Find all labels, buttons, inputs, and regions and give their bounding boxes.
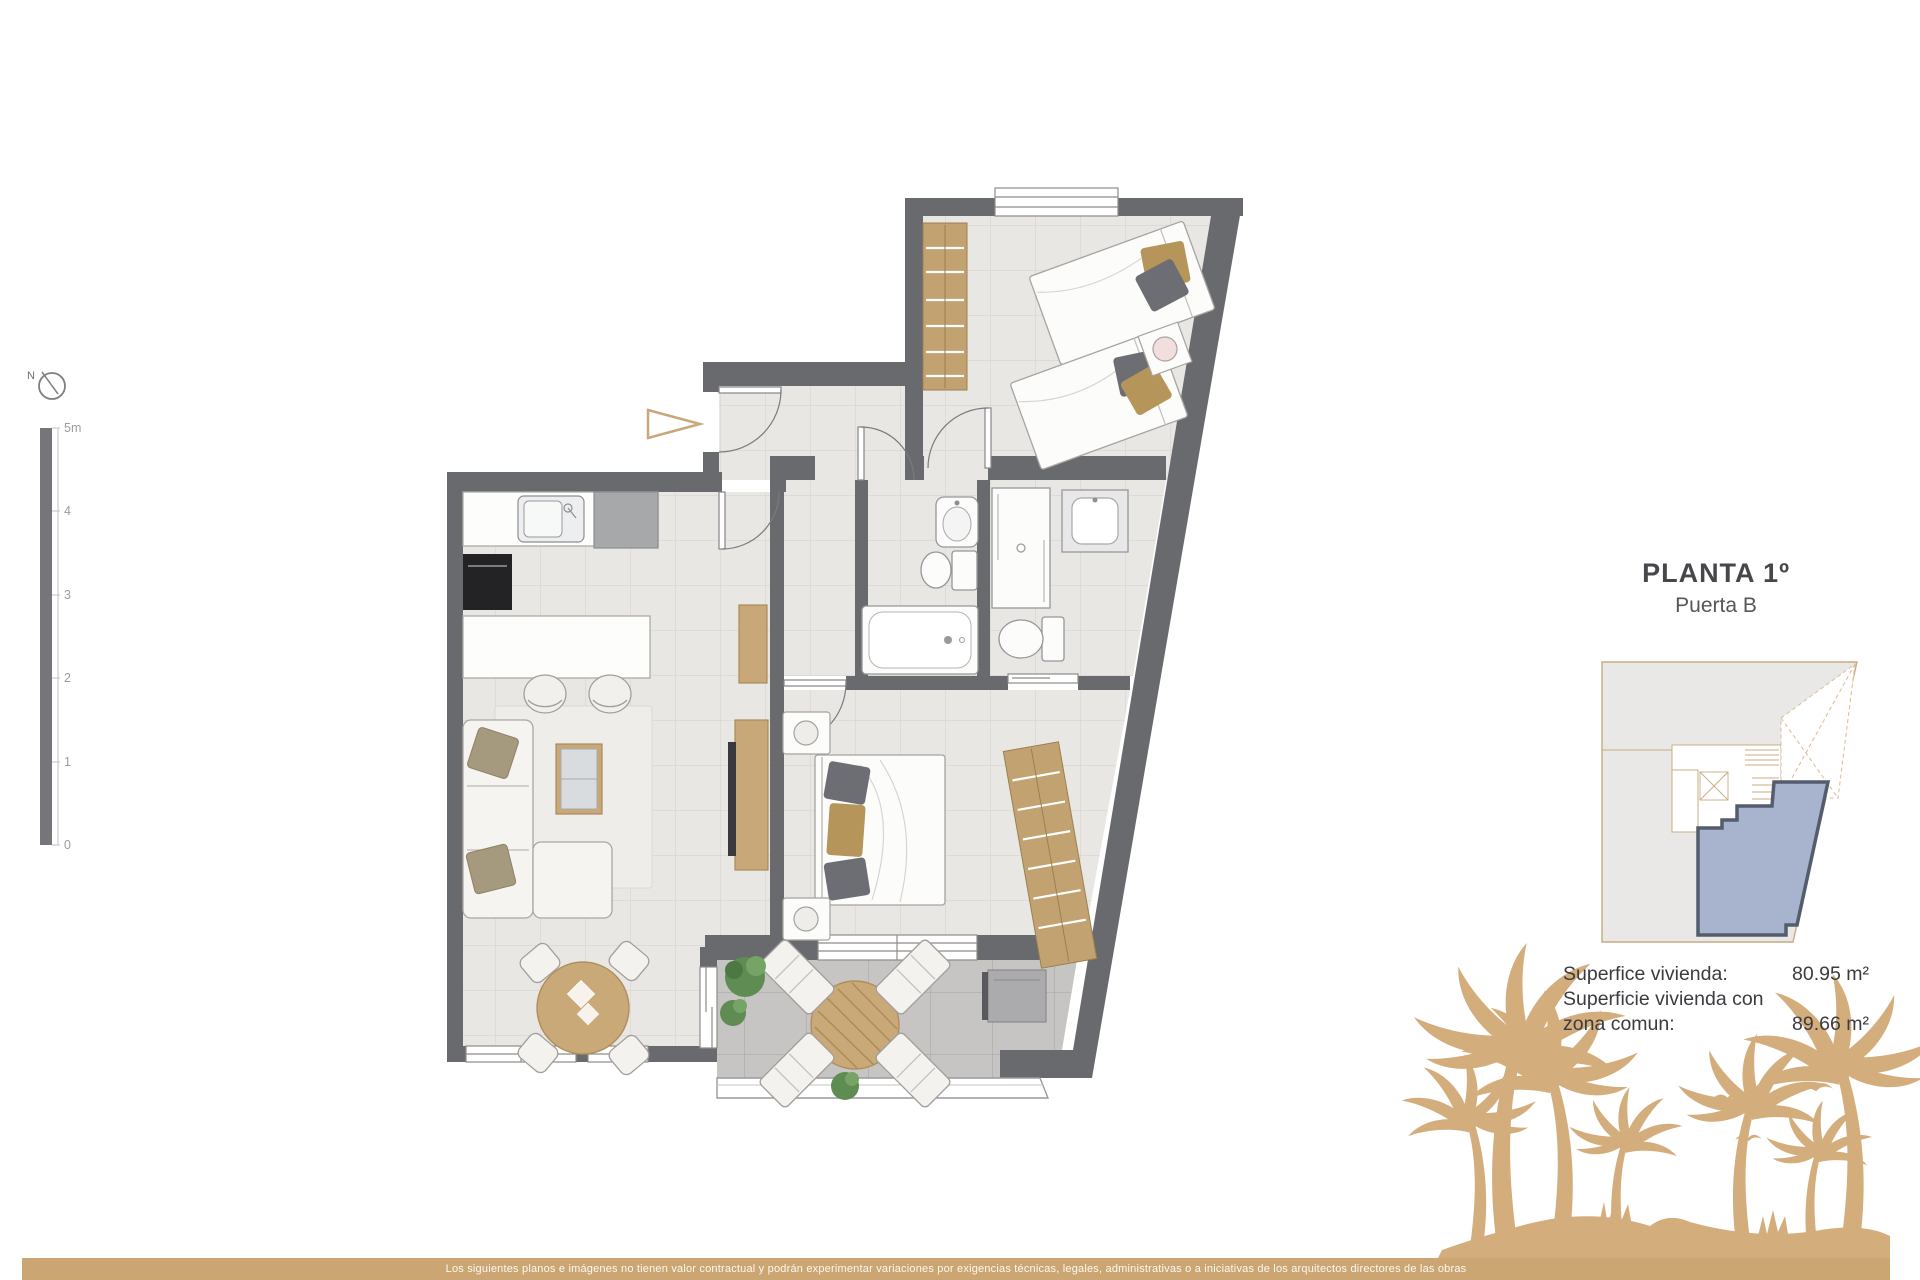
- plan-title-block: PLANTA 1º Puerta B: [1566, 558, 1866, 618]
- compass-north-label: N: [27, 370, 35, 382]
- double-bed: [815, 755, 945, 905]
- kitchen-sink: [518, 496, 584, 542]
- toilet-2: [999, 617, 1064, 661]
- disclaimer-text: Los siguientes planos e imágenes no tien…: [22, 1258, 1890, 1280]
- svg-text:5m: 5m: [64, 421, 81, 435]
- ac-unit: [982, 970, 1046, 1022]
- scale-labels: 5m 4 3 2 1 0: [64, 421, 81, 852]
- svg-text:0: 0: [64, 838, 71, 852]
- surface-row: zona comun: 89.66 m²: [1563, 1012, 1869, 1037]
- scale-bar: 5m 4 3 2 1 0: [40, 421, 81, 852]
- floor-plan-canvas: N 5m 4 3 2 1 0: [0, 0, 1920, 1280]
- washbasin-1: [936, 497, 978, 547]
- svg-text:2: 2: [64, 671, 71, 685]
- window-master-south: [818, 935, 977, 960]
- tv-console: [728, 720, 768, 870]
- bathroom1-door-leaf: [858, 427, 864, 480]
- oven: [463, 554, 512, 610]
- coffee-table: [556, 744, 602, 814]
- surface-row: Superfice vivienda: 80.95 m²: [1563, 962, 1869, 987]
- page-subtitle: Puerta B: [1566, 594, 1866, 618]
- entry-door-opening: [703, 392, 719, 452]
- surface-row: Superficie vivienda con: [1563, 987, 1869, 1012]
- svg-text:1: 1: [64, 755, 71, 769]
- bedroom2-door-leaf: [985, 408, 991, 468]
- key-plan: [1602, 662, 1857, 942]
- living-door-leaf: [719, 492, 725, 549]
- shower: [992, 488, 1050, 608]
- pillow: [823, 857, 870, 901]
- grass-tuft: [1758, 1210, 1788, 1236]
- pillow: [826, 803, 866, 857]
- surface-label: Superficie vivienda con: [1563, 987, 1764, 1012]
- sliding-door-bathroom2: [1008, 674, 1078, 683]
- bathtub: [862, 606, 978, 674]
- entrance-arrow-icon: [648, 410, 700, 438]
- svg-text:4: 4: [64, 504, 71, 518]
- svg-text:3: 3: [64, 588, 71, 602]
- tv-screen: [728, 742, 736, 856]
- sideboard: [739, 605, 767, 683]
- surface-value: 89.66 m²: [1792, 1012, 1869, 1037]
- north-compass-icon: N: [27, 370, 65, 399]
- brochure-page: N 5m 4 3 2 1 0: [0, 0, 1920, 1280]
- cooktop: [594, 492, 658, 548]
- sliding-door-terrace: [700, 967, 717, 1048]
- window-bedroom2-top: [995, 188, 1118, 216]
- entry-door-leaf: [719, 387, 781, 393]
- surface-label: Superfice vivienda:: [1563, 962, 1728, 987]
- wardrobe-bedroom2: [923, 223, 967, 390]
- pillow: [823, 761, 871, 806]
- kitchen-island: [463, 616, 650, 678]
- surface-value: 80.95 m²: [1792, 962, 1869, 987]
- page-title: PLANTA 1º: [1566, 558, 1866, 589]
- master-door-leaf: [784, 680, 846, 686]
- washbasin-2: [1062, 490, 1128, 552]
- surface-label: zona comun:: [1563, 1012, 1675, 1037]
- surface-areas-block: Superfice vivienda: 80.95 m² Superficie …: [1563, 962, 1869, 1037]
